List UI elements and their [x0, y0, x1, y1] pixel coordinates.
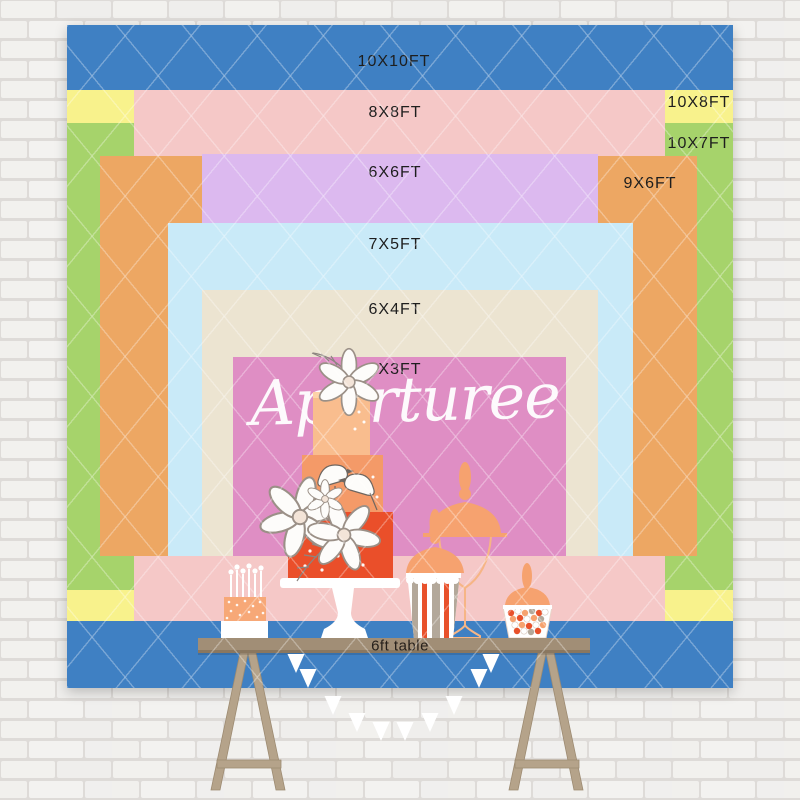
- table-size-label: 6ft table: [371, 639, 429, 654]
- backdrop-size-chart: 10X10FT 10X8FT 10X7FT 8X8FT 9X6FT 6X6FT …: [0, 0, 800, 800]
- table-scene: [0, 0, 800, 800]
- trestle-legs-icon: [211, 653, 583, 790]
- pennant-banner-icon: [288, 654, 500, 741]
